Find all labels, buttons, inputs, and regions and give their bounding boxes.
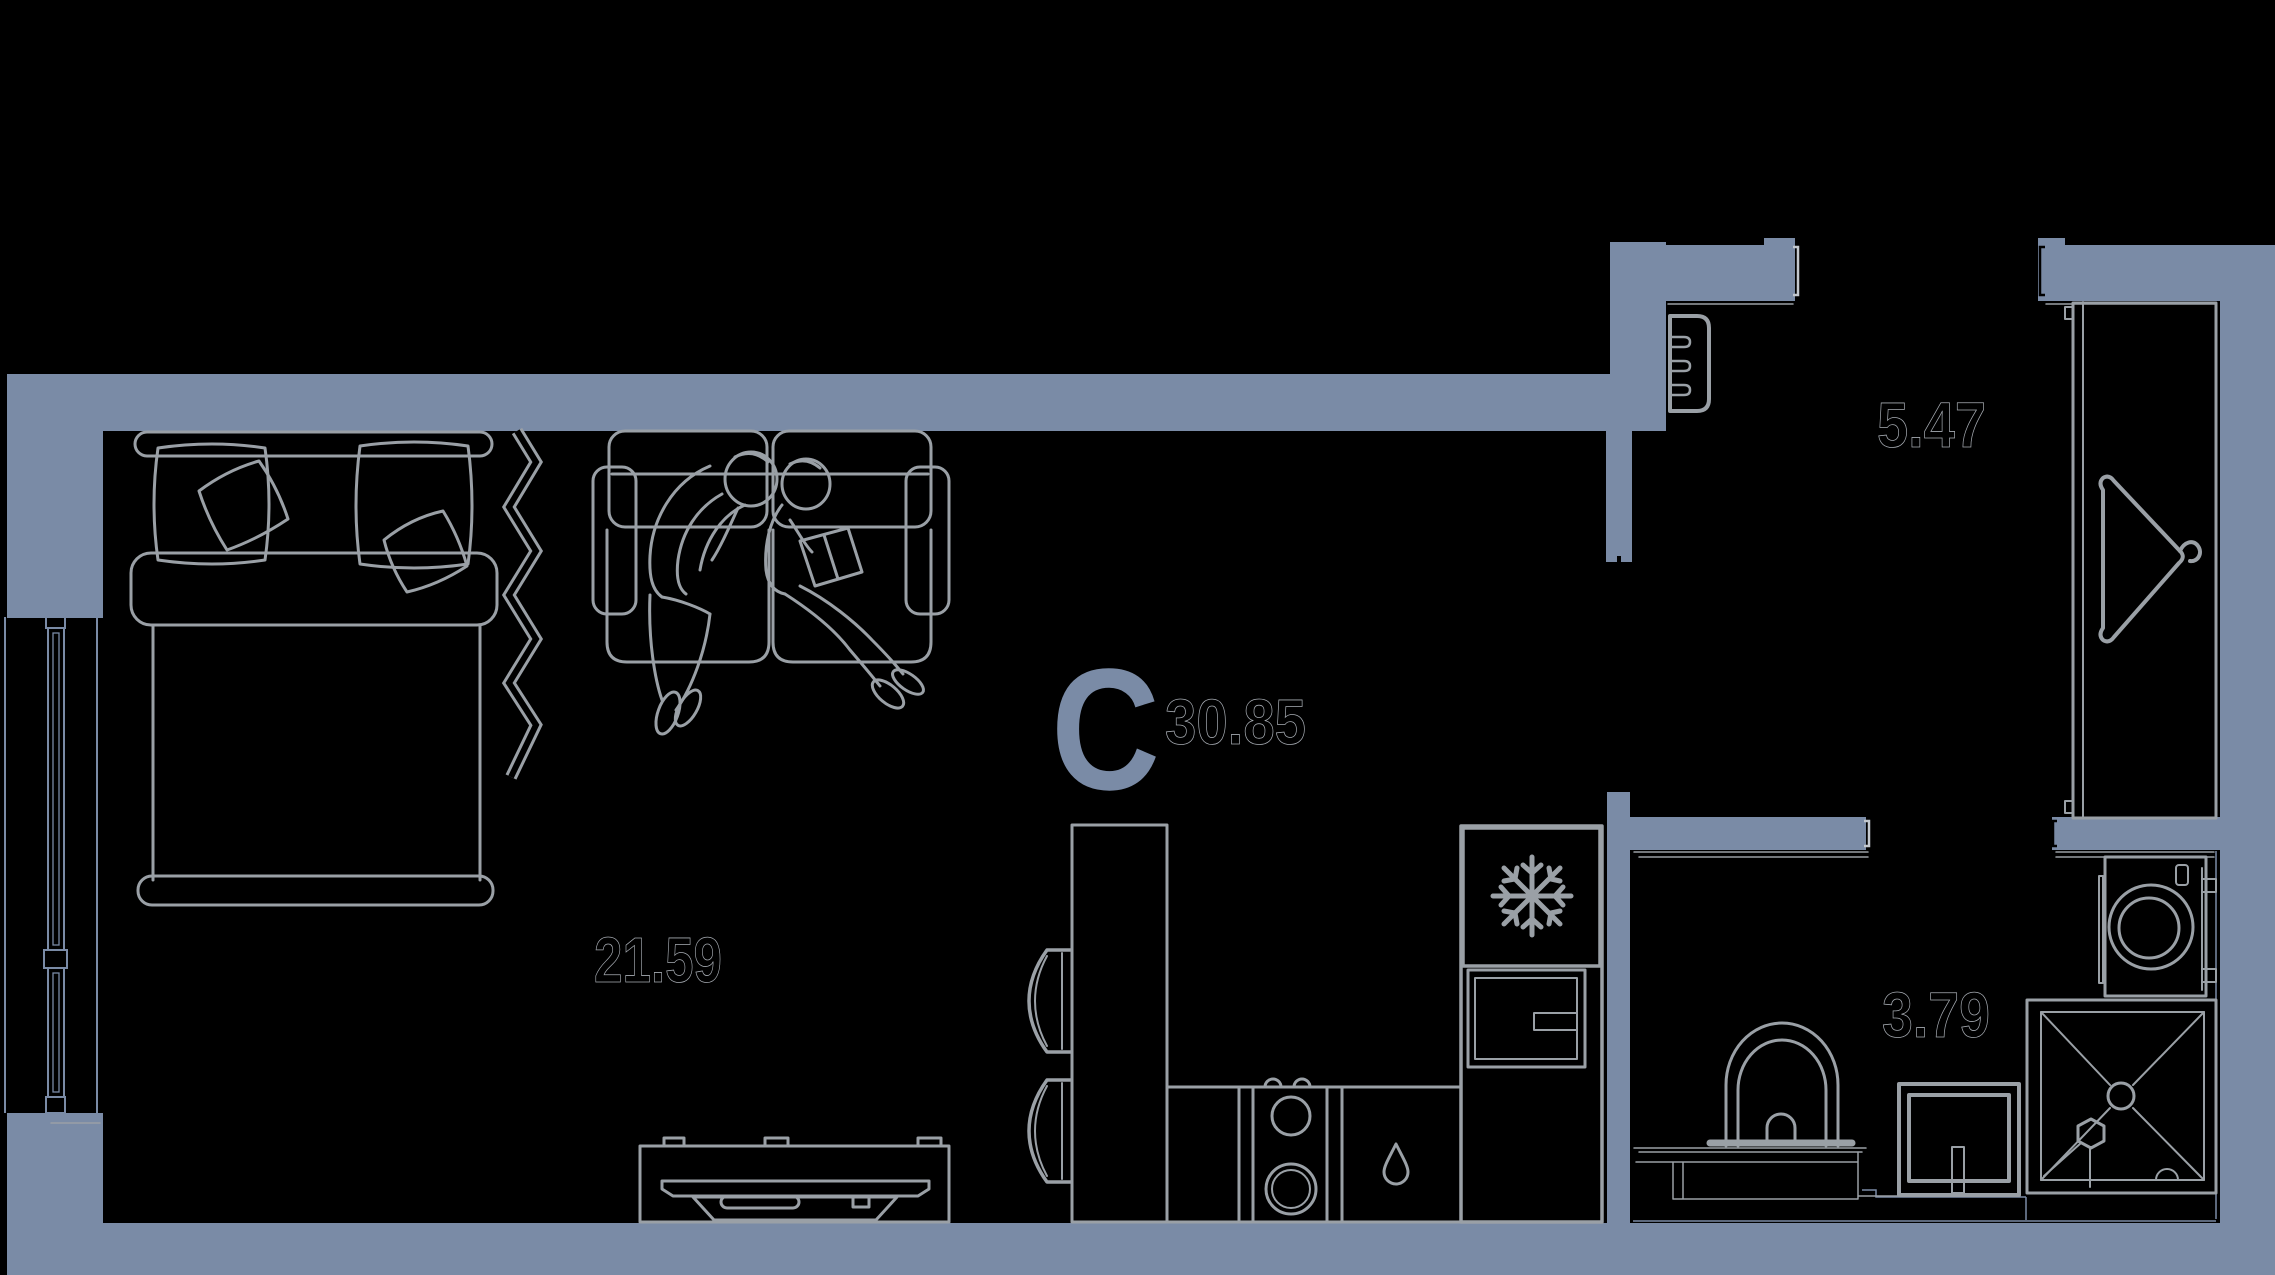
svg-text:5.47: 5.47 bbox=[1877, 389, 1986, 461]
svg-text:21.59: 21.59 bbox=[594, 924, 722, 996]
svg-text:3.79: 3.79 bbox=[1882, 979, 1990, 1051]
svg-text:30.85: 30.85 bbox=[1165, 686, 1306, 758]
svg-text:C: C bbox=[1051, 632, 1160, 826]
